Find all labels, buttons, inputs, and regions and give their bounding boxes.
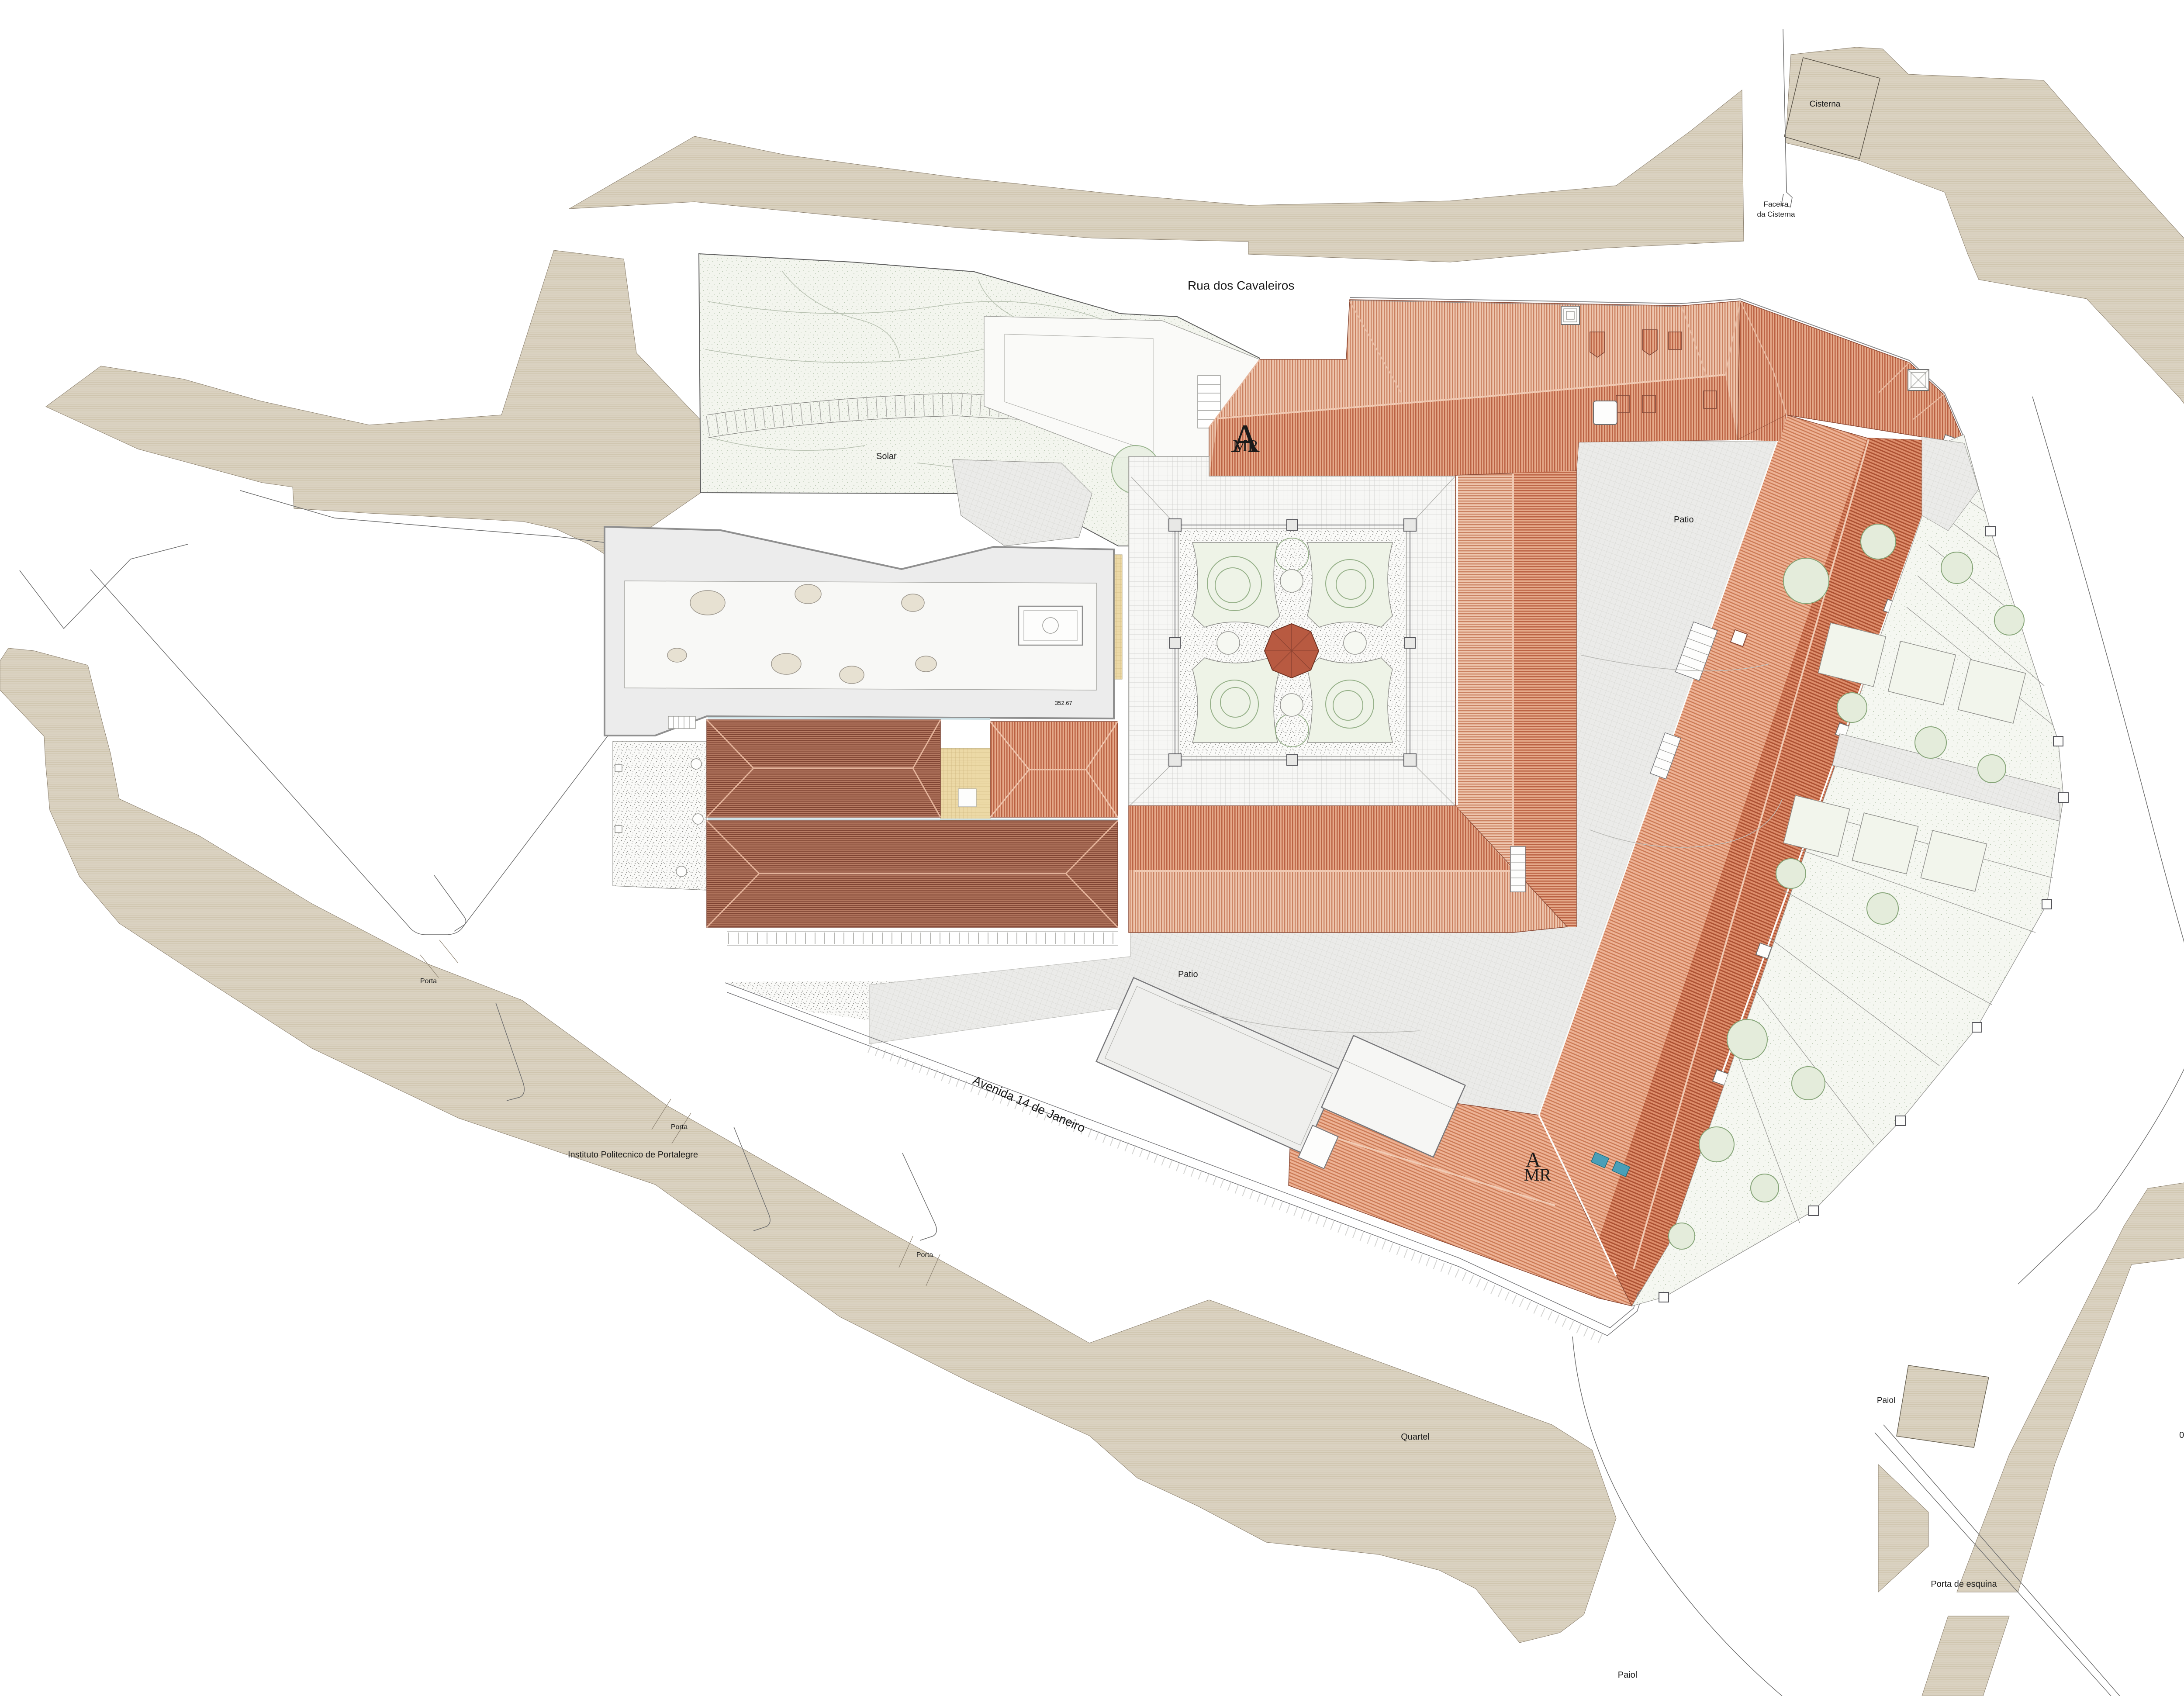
- svg-text:Rua dos Cavaleiros: Rua dos Cavaleiros: [1188, 279, 1294, 292]
- svg-text:352.67: 352.67: [1055, 700, 1072, 706]
- svg-text:0m: 0m: [2179, 1430, 2184, 1440]
- svg-text:da Cisterna: da Cisterna: [1757, 210, 1795, 218]
- svg-text:MR: MR: [1233, 437, 1259, 455]
- svg-text:Paiol: Paiol: [1618, 1670, 1637, 1680]
- svg-text:Patio: Patio: [1674, 515, 1694, 525]
- svg-text:Porta: Porta: [916, 1251, 933, 1259]
- svg-text:Cisterna: Cisterna: [1810, 100, 1841, 109]
- svg-text:Porta de esquina: Porta de esquina: [1931, 1579, 1997, 1589]
- svg-text:Instituto Politecnico de Porta: Instituto Politecnico de Portalegre: [568, 1150, 698, 1160]
- svg-text:Porta: Porta: [671, 1123, 688, 1131]
- svg-text:Patio: Patio: [1178, 970, 1198, 979]
- svg-text:Quartel: Quartel: [1401, 1432, 1430, 1442]
- svg-text:MR: MR: [1524, 1165, 1552, 1185]
- svg-text:Paiol: Paiol: [1877, 1396, 1895, 1405]
- svg-text:Faceira: Faceira: [1764, 200, 1789, 208]
- svg-text:Solar: Solar: [876, 452, 897, 461]
- svg-text:Porta: Porta: [420, 978, 437, 985]
